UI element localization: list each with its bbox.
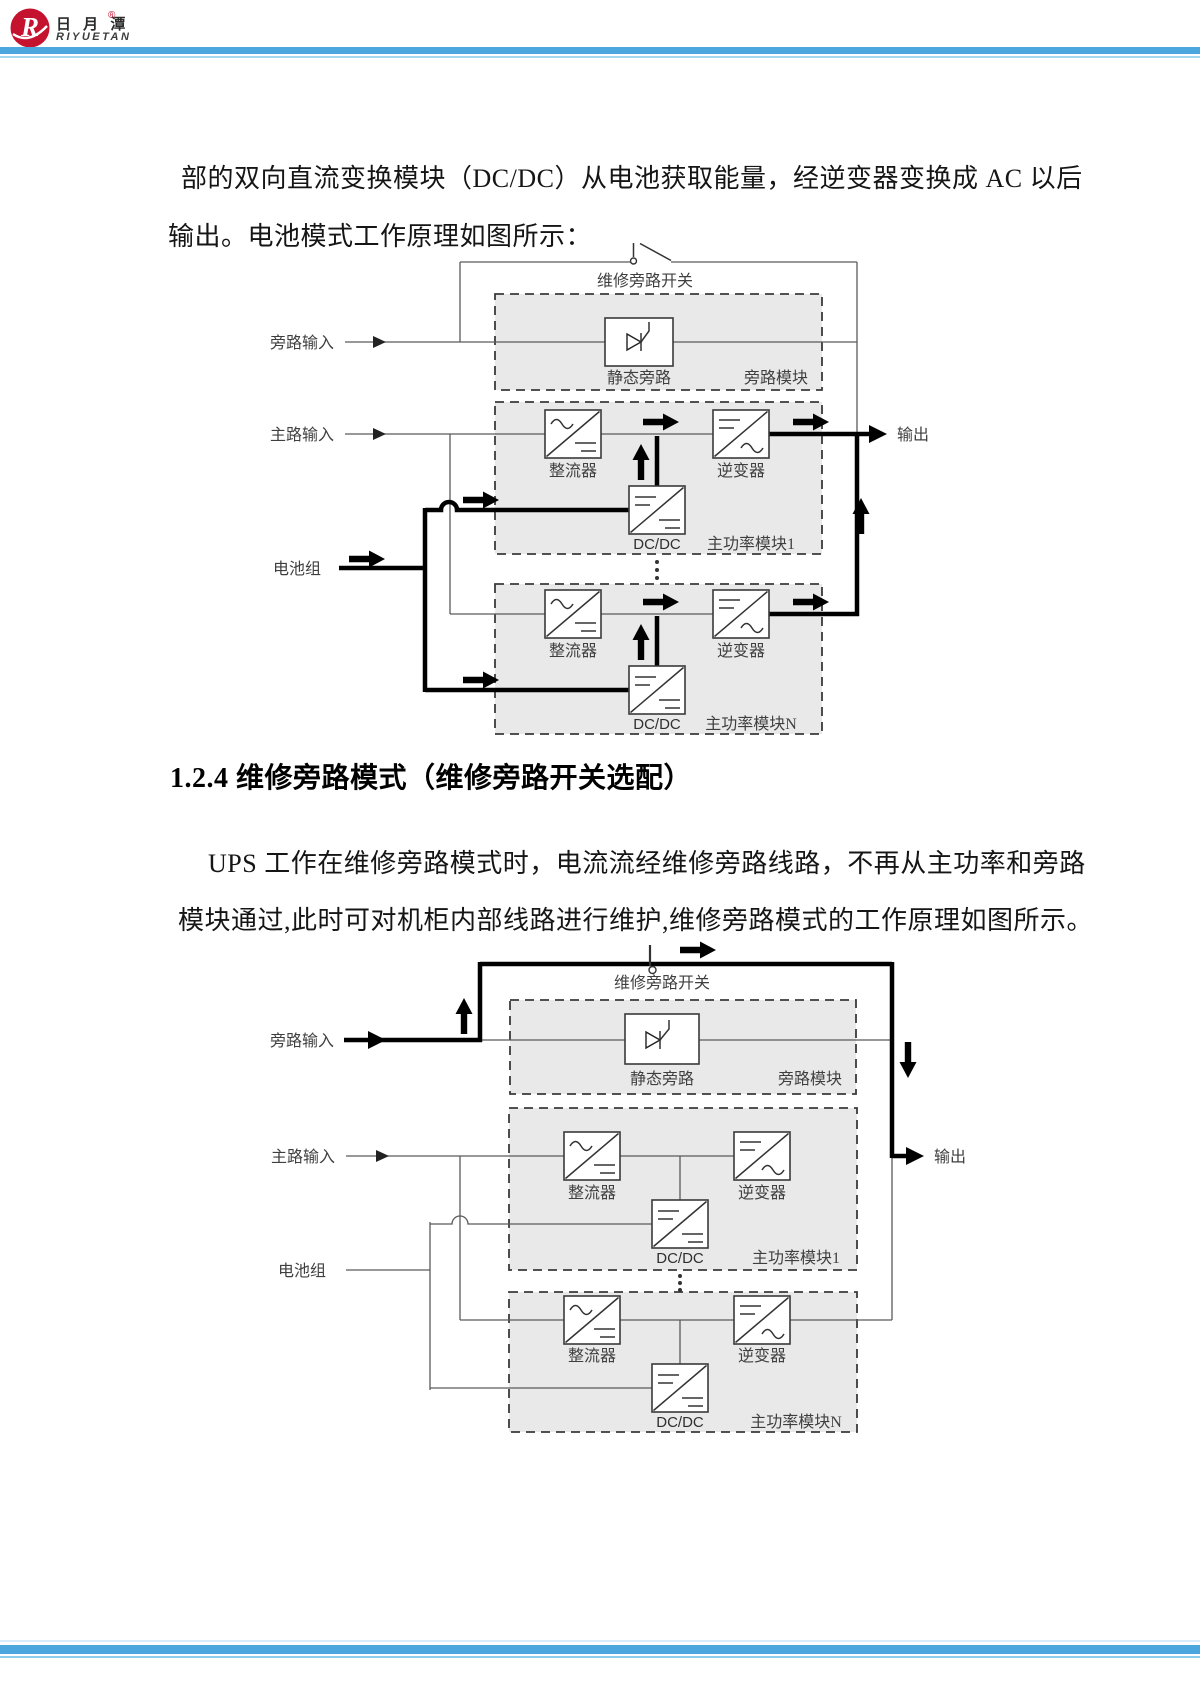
logo-circle-icon: R — [9, 7, 51, 49]
main-input-arrowhead — [376, 1150, 389, 1162]
maintenance-line-2: 模块通过,此时可对机柜内部线路进行维护,维修旁路模式的工作原理如图所示。 — [178, 900, 1093, 937]
bypass-input-arrowhead — [373, 336, 386, 348]
diagram-battery-mode: 维修旁路开关 旁路输入 静态旁路 旁路模块 主路输入 整流器 逆变器 DC/DC… — [245, 232, 985, 737]
dcdc-1-label: DC/DC — [633, 536, 681, 553]
bypass-input-arrowhead — [368, 1031, 386, 1049]
inverter-n-label: 逆变器 — [738, 1347, 786, 1365]
footer-rule-faint — [0, 1640, 1200, 1642]
modules-ellipsis — [655, 560, 659, 580]
maintenance-switch-open-icon — [631, 243, 672, 264]
static-bypass-label: 静态旁路 — [607, 369, 671, 387]
diagram-maintenance-bypass-mode: 维修旁路开关 旁路输入 静态旁路 旁路模块 主路输入 整流器 逆变器 DC/DC… — [250, 940, 990, 1440]
rectifier-1-label: 整流器 — [549, 462, 597, 480]
rectifier-n-label: 整流器 — [549, 642, 597, 660]
output-arrowhead — [906, 1147, 924, 1165]
rectifier-1-icon — [545, 410, 601, 458]
main-input-arrowhead — [373, 428, 386, 440]
dcdc-1-icon — [652, 1200, 708, 1248]
rectifier-n-icon — [545, 590, 601, 638]
rectifier-n-label: 整流器 — [568, 1347, 616, 1365]
intro-line-1: 部的双向直流变换模块（DC/DC）从电池获取能量，经逆变器变换成 AC 以后 — [181, 158, 1083, 195]
switch-label: 维修旁路开关 — [614, 974, 710, 992]
dcdc-1-label: DC/DC — [656, 1250, 704, 1267]
battery-label: 电池组 — [273, 560, 321, 578]
header-rule-thick — [0, 47, 1200, 54]
header-rule-thin — [0, 56, 1200, 58]
rectifier-1-label: 整流器 — [568, 1184, 616, 1202]
rectifier-1-icon — [564, 1132, 620, 1180]
dcdc-n-label: DC/DC — [656, 1414, 704, 1431]
footer-rule-thick — [0, 1645, 1200, 1654]
power-module-1-label: 主功率模块1 — [707, 535, 795, 553]
inverter-1-icon — [713, 410, 769, 458]
bypass-input-label: 旁路输入 — [270, 334, 334, 352]
power-module-n-label: 主功率模块N — [705, 715, 797, 733]
output-label: 输出 — [897, 426, 929, 444]
static-bypass-label: 静态旁路 — [630, 1070, 694, 1088]
inverter-n-label: 逆变器 — [717, 642, 765, 660]
static-bypass-scr-icon — [605, 318, 673, 366]
battery-label: 电池组 — [278, 1262, 326, 1280]
bypass-module-label: 旁路模块 — [778, 1070, 842, 1088]
dcdc-n-label: DC/DC — [633, 716, 681, 733]
output-arrowhead — [869, 425, 887, 443]
main-input-label: 主路输入 — [271, 1148, 335, 1166]
inverter-n-icon — [713, 590, 769, 638]
footer-rule-thin — [0, 1656, 1200, 1658]
inverter-n-icon — [734, 1296, 790, 1344]
inverter-1-icon — [734, 1132, 790, 1180]
brand-name-en: RIYUETAN — [56, 31, 131, 43]
dcdc-n-icon — [629, 666, 685, 714]
output-label: 输出 — [934, 1148, 966, 1166]
main-input-label: 主路输入 — [270, 426, 334, 444]
bypass-input-label: 旁路输入 — [270, 1032, 334, 1050]
inverter-1-label: 逆变器 — [738, 1184, 786, 1202]
maintenance-line-1: UPS 工作在维修旁路模式时，电流流经维修旁路线路，不再从主功率和旁路 — [208, 843, 1086, 880]
maintenance-switch-closed-icon — [649, 945, 656, 974]
power-module-n-label: 主功率模块N — [750, 1413, 842, 1431]
registered-mark: ® — [108, 10, 115, 21]
dcdc-1-icon — [629, 486, 685, 534]
dcdc-n-icon — [652, 1364, 708, 1412]
manual-page: R 日 月 潭 ® RIYUETAN 部的双向直流变换模块（DC/DC）从电池获… — [0, 0, 1200, 1697]
section-heading: 1.2.4 维修旁路模式（维修旁路开关选配） — [170, 756, 692, 796]
static-bypass-scr-icon — [625, 1014, 699, 1064]
switch-label: 维修旁路开关 — [597, 272, 693, 290]
rectifier-n-icon — [564, 1296, 620, 1344]
power-module-1-label: 主功率模块1 — [752, 1249, 840, 1267]
modules-ellipsis — [678, 1274, 682, 1292]
bypass-module-label: 旁路模块 — [744, 369, 808, 387]
inverter-1-label: 逆变器 — [717, 462, 765, 480]
